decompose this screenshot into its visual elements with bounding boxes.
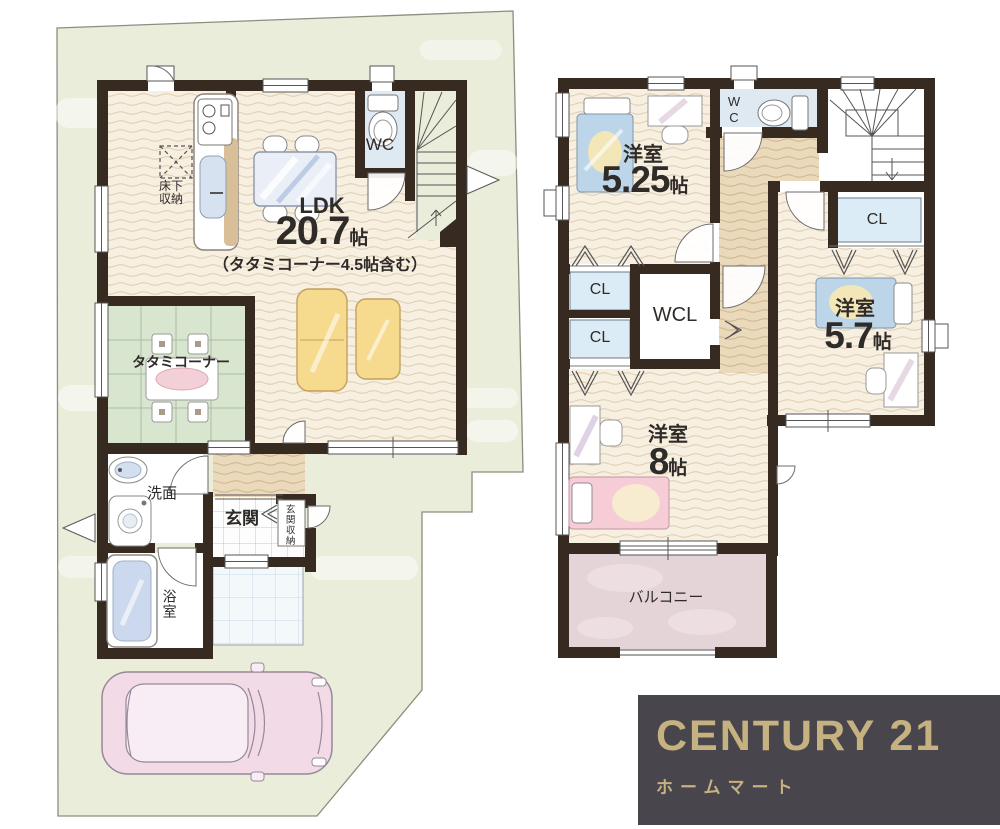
label-room8-size: 8帖 bbox=[595, 441, 741, 482]
label-washroom: 洗面 bbox=[130, 486, 194, 503]
label-ldk-size: 20.7帖 bbox=[247, 209, 397, 254]
label-closet1: CL bbox=[571, 281, 629, 299]
hall1-floor bbox=[213, 452, 305, 497]
label-walkin-closet: WCL bbox=[638, 304, 712, 326]
label-entrance-storage: 玄関収納 bbox=[283, 502, 294, 548]
label-closet2: CL bbox=[571, 329, 629, 347]
label-room525-size: 5.25帖 bbox=[572, 159, 718, 200]
bathtub bbox=[107, 555, 157, 647]
label-underfloor-storage: 床下収納 bbox=[145, 180, 197, 207]
label-closet3: CL bbox=[847, 211, 907, 229]
label-balcony: バルコニー bbox=[596, 590, 736, 607]
kitchen bbox=[194, 94, 238, 250]
label-tatami-corner: タタミコーナー bbox=[110, 355, 252, 371]
label-wc-1f: WC bbox=[355, 135, 405, 154]
floorplan-page: 床下収納 WC LDK 20.7帖 （タタミコーナー4.5帖含む） タタミコーナ… bbox=[0, 0, 1000, 829]
label-wc-2f: WC bbox=[726, 94, 742, 127]
stairs-2f bbox=[830, 89, 924, 181]
label-entrance: 玄関 bbox=[210, 509, 274, 528]
car bbox=[102, 663, 332, 781]
porch-tiles bbox=[213, 559, 303, 645]
label-room57-size: 5.7帖 bbox=[785, 315, 931, 356]
century21-logo: CENTURY 21 ホームマート bbox=[638, 695, 1000, 825]
bed-8 bbox=[569, 477, 669, 529]
logo-brand-text: CENTURY 21 bbox=[656, 715, 1000, 758]
label-bathroom: 浴室 bbox=[161, 578, 177, 630]
label-ldk-note: （タタミコーナー4.5帖含む） bbox=[189, 257, 451, 275]
logo-company-text: ホームマート bbox=[656, 773, 1000, 798]
